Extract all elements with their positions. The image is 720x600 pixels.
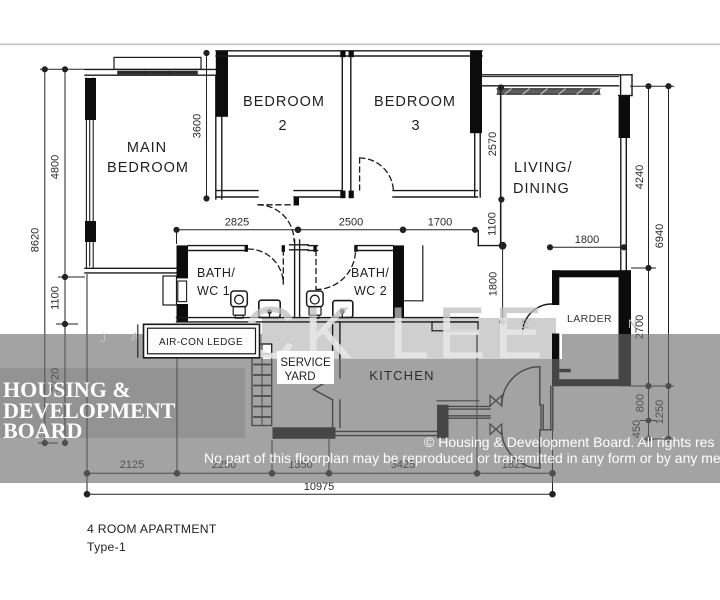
- svg-text:1100: 1100: [487, 212, 499, 236]
- svg-text:LIVING/: LIVING/: [514, 160, 573, 176]
- svg-text:YARD: YARD: [284, 371, 315, 383]
- svg-text:AIR-CON LEDGE: AIR-CON LEDGE: [159, 337, 243, 348]
- svg-text:3: 3: [411, 118, 420, 134]
- svg-text:J: J: [100, 331, 106, 345]
- svg-text:MAIN: MAIN: [127, 140, 167, 156]
- svg-text:WC 1: WC 1: [197, 284, 230, 298]
- svg-text:KITCHEN: KITCHEN: [369, 368, 434, 383]
- svg-text:DINING: DINING: [513, 181, 570, 197]
- svg-text:4 ROOM APARTMENT: 4 ROOM APARTMENT: [87, 522, 217, 536]
- svg-text:© Housing & Development Board.: © Housing & Development Board. All right…: [424, 434, 714, 450]
- svg-text:N: N: [628, 317, 637, 331]
- svg-text:2: 2: [278, 118, 287, 134]
- svg-text:2570: 2570: [487, 132, 499, 156]
- svg-text:E: E: [521, 317, 529, 331]
- svg-text:BEDROOM: BEDROOM: [374, 94, 456, 110]
- svg-text:BATH/: BATH/: [197, 266, 235, 280]
- svg-text:1700: 1700: [428, 217, 452, 229]
- svg-text:1100: 1100: [50, 286, 62, 310]
- svg-text:2825: 2825: [225, 217, 249, 229]
- svg-text:BEDROOM: BEDROOM: [107, 160, 189, 176]
- svg-text:6940: 6940: [654, 224, 666, 248]
- svg-text:BATH/: BATH/: [351, 266, 389, 280]
- svg-text:BEDROOM: BEDROOM: [243, 94, 325, 110]
- svg-text:2500: 2500: [339, 217, 363, 229]
- svg-text:4240: 4240: [634, 165, 646, 189]
- svg-text:8620: 8620: [30, 228, 42, 252]
- svg-text:3600: 3600: [192, 114, 204, 138]
- svg-text:No part of this floorplan may: No part of this floorplan may be reprodu…: [204, 450, 720, 466]
- svg-text:LARDER: LARDER: [567, 313, 612, 325]
- svg-text:SERVICE: SERVICE: [280, 357, 331, 369]
- svg-text:4800: 4800: [50, 155, 62, 179]
- svg-text:BOARD: BOARD: [3, 418, 82, 443]
- svg-text:Type-1: Type-1: [87, 540, 126, 554]
- svg-text:1800: 1800: [575, 234, 599, 246]
